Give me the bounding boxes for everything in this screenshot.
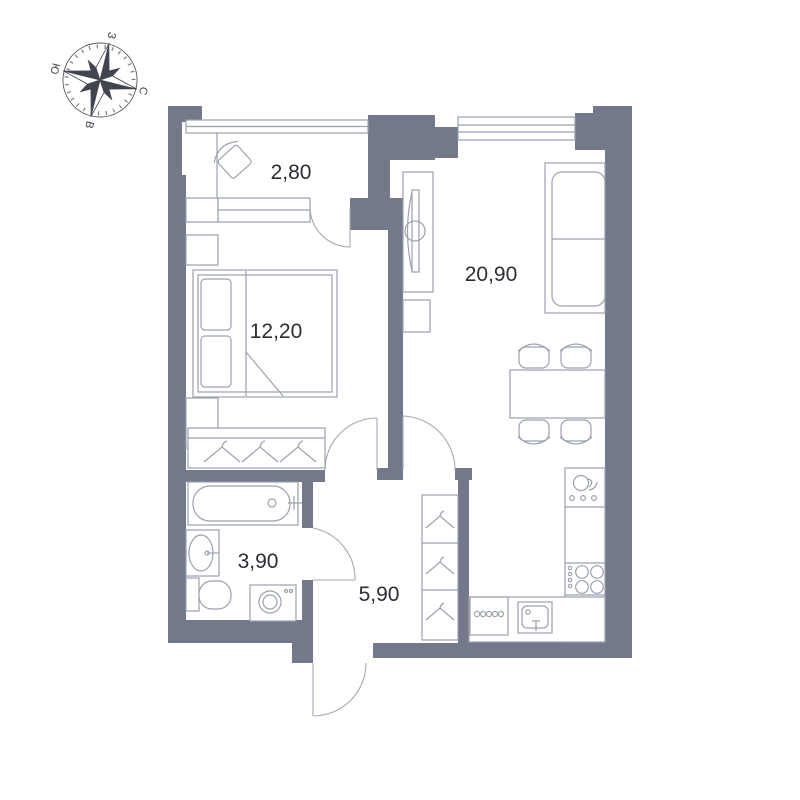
toilet-tank: [186, 578, 199, 611]
bathroom-door-arc: [313, 528, 355, 580]
balcony-chair-seat: [217, 144, 252, 179]
wardrobe: [188, 428, 325, 468]
wall-segment: [605, 150, 632, 658]
compass-rose: С В Ю З: [37, 19, 161, 140]
wall-return: [186, 198, 218, 222]
floor-plan-canvas: С В Ю З: [0, 0, 800, 800]
dining-chair: [561, 420, 591, 441]
compass-east-label: В: [82, 120, 95, 130]
compass-south-label: Ю: [47, 62, 61, 76]
balcony-door-arc: [310, 207, 350, 247]
entrance-door-arc: [313, 663, 366, 716]
living-kitchen-area-label: 20,90: [465, 263, 518, 286]
hallway-furniture: [422, 495, 458, 640]
side-cabinet: [403, 300, 430, 332]
wall-segment: [368, 160, 390, 200]
hallway-area-label: 5,90: [359, 583, 400, 606]
wall-segment: [168, 175, 186, 643]
bedroom-furniture: [186, 235, 337, 468]
wall-segment: [168, 106, 182, 180]
balcony-area-label: 2,80: [271, 161, 312, 184]
wall-segment: [302, 580, 313, 643]
dining-chair: [519, 420, 549, 441]
dining-chair: [561, 347, 591, 368]
wall-segment: [168, 470, 325, 482]
living-room-window: [458, 117, 575, 140]
floor-plan-page: С В Ю З: [0, 0, 800, 800]
wall-segment: [593, 106, 632, 122]
wall-segment: [373, 643, 458, 658]
bed-pillow: [201, 279, 231, 330]
wall-segment: [292, 643, 313, 663]
wall-segment: [458, 468, 469, 642]
compass-west-label: З: [105, 31, 118, 41]
wall-segment: [435, 127, 458, 158]
wall-segment: [168, 620, 303, 643]
nightstand: [186, 235, 218, 265]
wall-segment: [368, 115, 435, 160]
dining-table: [510, 370, 605, 418]
bathroom-area-label: 3,90: [238, 550, 279, 573]
bedroom-area-label: 12,20: [250, 320, 303, 343]
bed-pillow: [201, 336, 231, 387]
wall-segment: [388, 198, 403, 480]
sofa: [545, 163, 605, 313]
compass-north-label: С: [136, 85, 150, 96]
living-room-door-arc: [403, 416, 455, 470]
bedroom-door-arc: [325, 418, 377, 470]
toilet-bowl: [199, 581, 231, 609]
dining-chair: [519, 347, 549, 368]
